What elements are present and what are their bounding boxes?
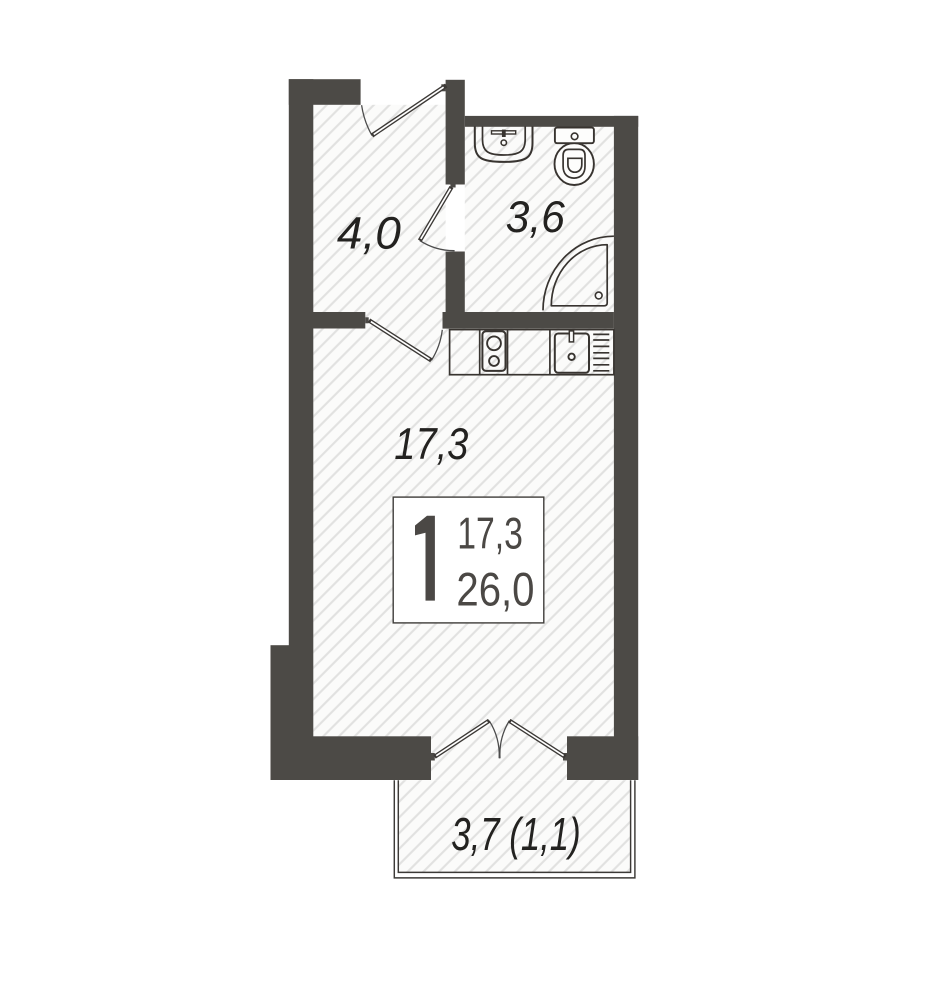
svg-text:3,7 (1,1): 3,7 (1,1): [451, 808, 580, 860]
svg-text:3,6: 3,6: [506, 192, 565, 242]
svg-text:4,0: 4,0: [337, 208, 401, 259]
svg-text:26,0: 26,0: [456, 564, 534, 617]
svg-text:17,3: 17,3: [457, 508, 523, 559]
svg-text:17,3: 17,3: [394, 418, 468, 469]
